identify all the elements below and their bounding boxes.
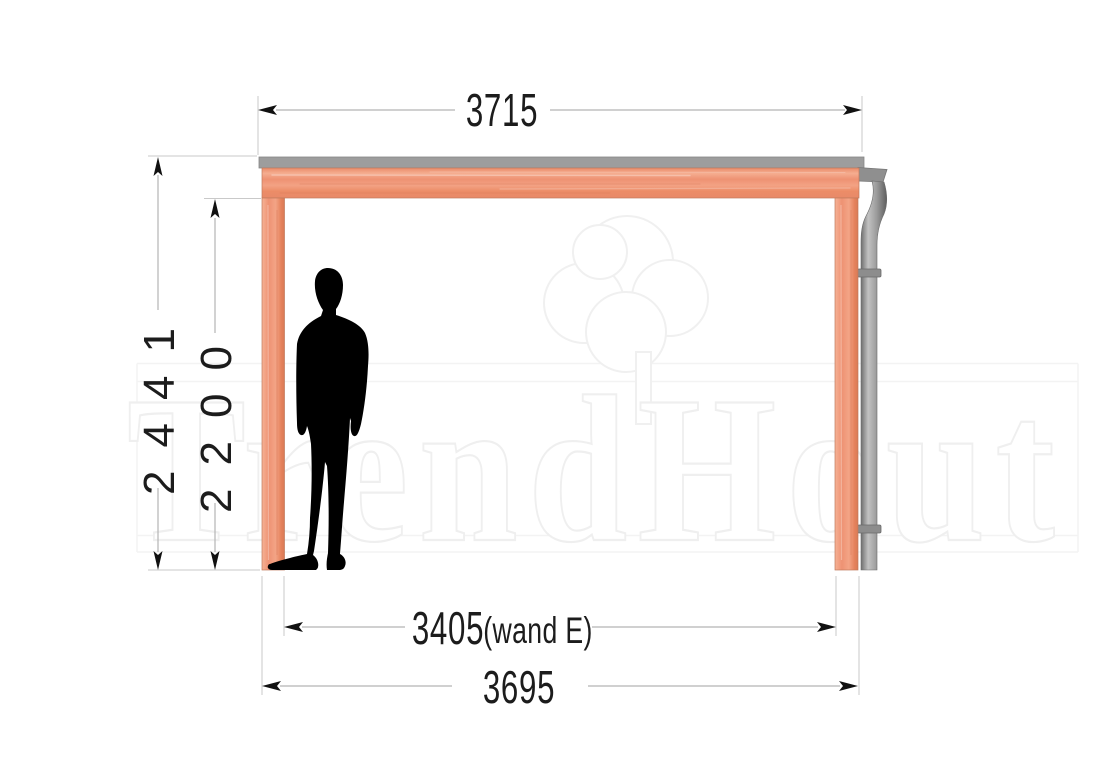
dimension-label-overall-height: 2441 [135, 305, 184, 495]
dimension-bottom-width: 3695 [262, 662, 858, 713]
fascia-beam [262, 168, 859, 198]
dimension-label-wall-width: 3405 [412, 603, 484, 654]
arrow-right-icon [817, 622, 836, 632]
arrow-left-icon [284, 622, 303, 632]
arrow-left-icon [262, 681, 281, 691]
arrow-up-icon [154, 157, 163, 176]
arrow-up-icon [211, 199, 220, 218]
post-left [262, 198, 285, 570]
pipe-coupling-lower [858, 525, 882, 533]
dimension-label-clear-height: 2200 [192, 323, 241, 513]
arrow-right-icon [839, 681, 858, 691]
dimension-label-bottom-width: 3695 [483, 662, 555, 713]
dimension-wall-width: 3405 (wand E) [284, 603, 836, 654]
drawing-svg: TrendHout [0, 0, 1120, 770]
technical-drawing-canvas: TrendHout [0, 0, 1120, 770]
pipe-coupling-upper [858, 269, 882, 277]
dimension-label-wall-width-suffix: (wand E) [483, 610, 592, 651]
dimension-top-width: 3715 [258, 85, 862, 136]
gutter-end-cap [858, 168, 887, 183]
roof-edge-profile [259, 157, 864, 168]
dimension-label-top-width: 3715 [466, 85, 538, 136]
post-right [835, 198, 858, 570]
arrow-left-icon [258, 105, 277, 115]
arrow-right-icon [843, 105, 862, 115]
